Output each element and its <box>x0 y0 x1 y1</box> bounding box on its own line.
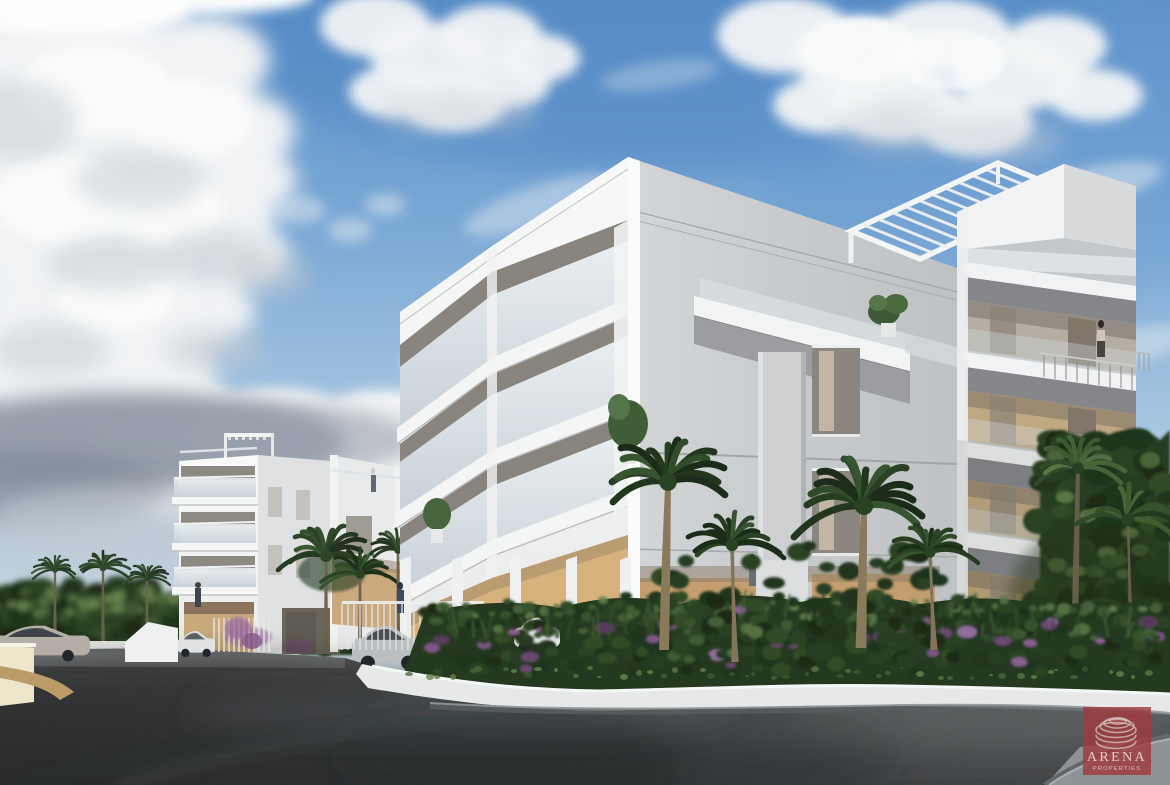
svg-text:PROPERTIES: PROPERTIES <box>1093 766 1141 772</box>
svg-text:ARENA: ARENA <box>1087 750 1147 765</box>
